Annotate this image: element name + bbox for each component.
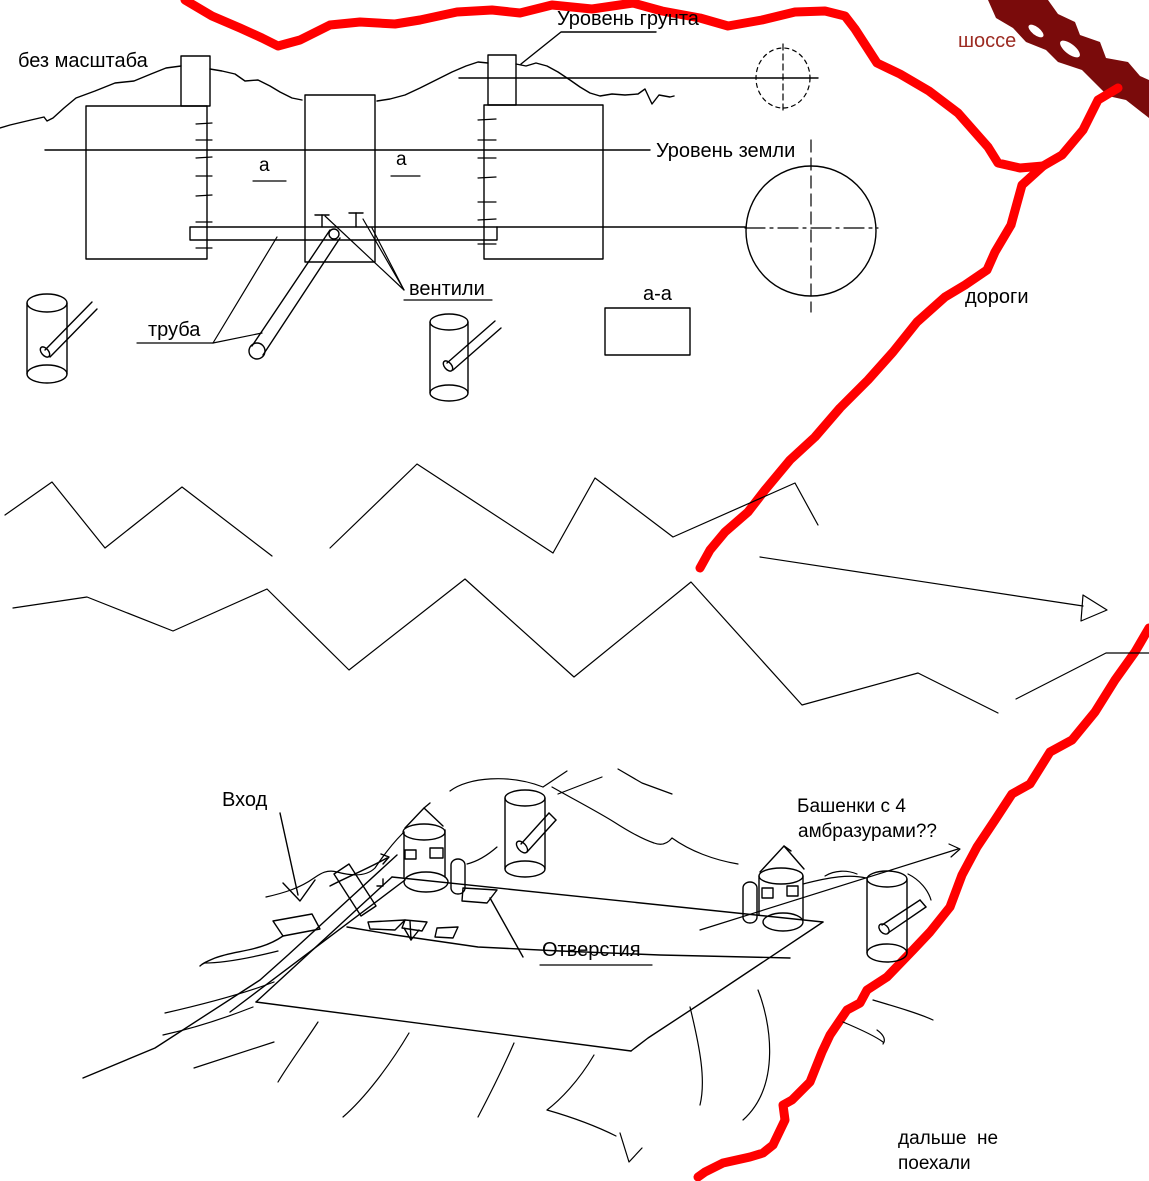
label-turrets-line1: Башенки с 4 [797, 796, 906, 818]
label-pipe: труба [148, 319, 200, 341]
label-section-mark-left: а [259, 155, 270, 177]
label-no-further-line1: дальше не [898, 1128, 998, 1150]
vent-cylinder-left [27, 294, 97, 383]
label-section-a-a: а-а [643, 283, 672, 305]
section-a-a-box [605, 308, 690, 355]
left-tank [86, 106, 207, 259]
right-tank-ticks [478, 119, 496, 244]
valve-symbols [315, 213, 363, 239]
post-right [743, 882, 757, 923]
label-turrets-line2: амбразурами?? [798, 821, 937, 843]
red-road-main [700, 166, 1043, 568]
cross-section-drawing [0, 32, 878, 965]
drain-tube [249, 230, 340, 359]
plan-circle [745, 140, 878, 312]
platform [256, 877, 823, 1051]
ground-surface-line [516, 63, 674, 104]
label-earth-level: Уровень земли [656, 140, 795, 162]
highway-band [988, 0, 1149, 118]
label-section-mark-right: а [396, 149, 407, 171]
label-no-further-line2: поехали [898, 1153, 971, 1175]
platform-holes [368, 888, 523, 957]
label-roads: дороги [965, 286, 1029, 308]
vent-cylinder-middle [430, 314, 501, 401]
big-cylinder-left [505, 790, 556, 877]
left-tank-ticks [196, 123, 212, 248]
arrow-to-road [700, 844, 960, 930]
entrance-ramp [83, 854, 405, 1078]
sketch-svg [0, 0, 1149, 1181]
middle-tank [305, 95, 375, 262]
label-entrance: Вход [222, 789, 267, 811]
label-openings: Отверстия [542, 939, 641, 961]
label-no-scale: без масштаба [18, 50, 148, 72]
red-road-lower [698, 628, 1149, 1177]
right-tank [484, 105, 603, 259]
left-tank-chimney [181, 56, 210, 106]
direction-arrow [760, 557, 1107, 621]
label-highway: шоссе [958, 30, 1016, 52]
roads-group [185, 0, 1149, 1177]
ground-surface-line [0, 66, 181, 128]
ground-surface-line [210, 69, 302, 100]
mountain-zigzags [5, 464, 1149, 713]
ground-surface-line [377, 62, 488, 101]
paint-drawing-canvas: без масштаба Уровень грунта Уровень земл… [0, 0, 1149, 1181]
label-valves: вентили [409, 278, 485, 300]
ground-level-leader [521, 32, 656, 64]
right-tank-chimney [488, 55, 516, 105]
red-road-branch [1043, 88, 1118, 166]
label-ground-surface-level: Уровень грунта [557, 8, 699, 30]
